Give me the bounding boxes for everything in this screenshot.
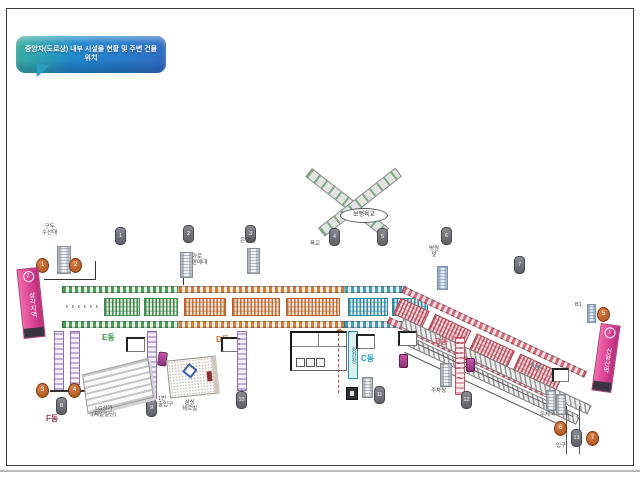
block-label-e: E동 [102, 332, 115, 343]
exit-pill: 9 [146, 399, 157, 417]
post-label: 우체국 [540, 412, 555, 418]
booth-label: 구두 수선대 [42, 224, 57, 237]
room-box [296, 358, 305, 367]
exit-pill: 4 [329, 228, 340, 246]
building2-label: 삼성 쉐르빌 [182, 400, 197, 413]
road-strip [178, 321, 346, 328]
road-strip [62, 286, 180, 293]
exit-pill: 5 [377, 228, 388, 246]
wall-line [318, 333, 319, 346]
block-label-c: C동 [361, 353, 374, 364]
stair-box [356, 334, 375, 349]
tower-base [592, 380, 612, 392]
shop-block-orange [286, 298, 340, 316]
booth-building [587, 304, 596, 323]
num-circle: 6 [554, 421, 567, 436]
road-strip [62, 321, 180, 328]
bank-label: 은행앞 [240, 238, 255, 244]
num-circle: 7 [586, 431, 599, 446]
page-title: 중앙차(도로상) 내부 시설물 현황 및 주변 건물 위치 [16, 46, 166, 63]
booth-building [546, 390, 556, 411]
exit-pill: 11 [374, 386, 385, 404]
tower-base [23, 327, 45, 338]
stair-box [126, 337, 145, 352]
booth-building [362, 377, 373, 398]
car-icon [466, 358, 475, 372]
booth-building [556, 394, 566, 415]
num-circle: 2 [69, 258, 82, 273]
room-box [316, 358, 325, 367]
exit-pill: 12 [461, 391, 472, 409]
shop-block-cyan [348, 298, 388, 316]
parking-label: 주차장 [431, 388, 446, 394]
platform-strip [455, 337, 465, 395]
exit-pill: 7 [514, 256, 525, 274]
exit-pill: 1 [115, 227, 126, 245]
block-label-f: F동 [46, 413, 58, 424]
shop-block-green [144, 298, 178, 316]
tick-dots [66, 305, 100, 308]
block-label-b: B동 [435, 336, 448, 347]
booth-building [247, 248, 260, 274]
exit-pill: 13 [571, 429, 582, 447]
kiosk-box [346, 387, 358, 400]
overpass-note: 육교 [310, 241, 320, 247]
entrance-label: 입구 [556, 443, 566, 449]
slide-footer-line [0, 470, 640, 472]
dashed-guide [338, 333, 339, 393]
slide-canvas: 중앙차(도로상) 내부 시설물 현황 및 주변 건물 위치 보행육교 [0, 0, 640, 480]
shop-block-orange [184, 298, 226, 316]
num-circle: 3 [36, 383, 49, 398]
num-circle: 4 [68, 383, 81, 398]
station-name: 신용산역 [598, 337, 614, 382]
road-strip [178, 286, 346, 293]
exit-pill: 6 [441, 227, 452, 245]
building1-label: LG상가 (제일빌딩) [92, 406, 116, 419]
exit-pill: 10 [236, 391, 247, 409]
exit-pill: 2 [183, 225, 194, 243]
platform-strip [54, 331, 64, 391]
b1-label: B1 [575, 302, 582, 308]
hospital-label: 병원 앞 [429, 246, 439, 259]
road-strip [344, 286, 406, 293]
door [207, 371, 213, 381]
building-box [166, 355, 220, 398]
booth-label: 가로 판매대 [192, 254, 207, 267]
stair-box [552, 368, 569, 382]
stair-box [398, 331, 417, 346]
platform-strip [237, 331, 247, 391]
station-name: 삼각지역 [24, 282, 39, 329]
title-bubble: 중앙차(도로상) 내부 시설물 현황 및 주변 건물 위치 [16, 36, 166, 73]
hospital-building [437, 266, 448, 290]
logo-diamond [182, 363, 197, 378]
car-icon [399, 354, 408, 368]
shop-block-orange [232, 298, 280, 316]
overpass-label: 보행육교 [340, 208, 388, 223]
booth-building [57, 246, 71, 274]
num-circle: 5 [597, 307, 610, 322]
curb-line [44, 279, 96, 280]
shop-block-green [104, 298, 140, 316]
platform-strip [70, 331, 80, 385]
room-box [306, 358, 315, 367]
booth-building [440, 363, 452, 387]
curb-line [95, 261, 96, 280]
